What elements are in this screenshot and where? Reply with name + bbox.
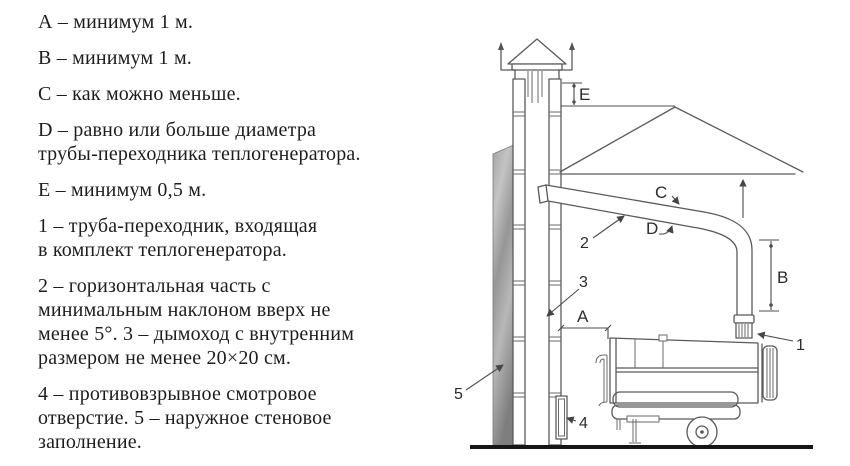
label-4: 4 [579,415,588,432]
label-e: Е [579,85,590,104]
label-d: D [646,219,658,238]
pipe-connector [734,315,754,338]
dimension-e: Е [561,83,675,106]
label-5: 5 [454,386,463,403]
roof [560,107,803,174]
heat-generator [596,335,777,447]
callout-2: 2 [580,216,624,252]
side-handle-pipe [596,355,607,406]
d-leader-line [659,226,672,234]
hitch-post [617,419,620,430]
cap-cone [508,39,566,64]
heater-body [596,335,777,406]
chimney-left-wall [513,79,525,445]
dimension-a: А [558,307,611,339]
callout-1: 1 [758,334,805,354]
inner-flue-pipe [528,71,542,103]
label-2: 2 [580,235,589,252]
c-leader-line [672,196,679,204]
label-a: А [577,307,589,326]
label-c: С [655,183,667,202]
callout-4: 4 [567,415,588,432]
body-seams [635,339,663,368]
label-1: 1 [796,337,805,354]
installation-diagram: Е С D 2 3 В [0,0,850,465]
cap-rim [512,64,562,70]
cap-supports [515,70,559,79]
jack-leg [629,419,641,443]
inspection-hatch [556,396,567,439]
label-b: В [777,268,788,287]
wheel [687,417,717,447]
lifting-eye [659,335,667,341]
chimney-right-wall [549,79,561,445]
trailer-step [627,416,659,422]
label-3: 3 [579,274,588,291]
chimney-cap [498,39,575,103]
dimension-b: В [759,240,788,311]
chimney [513,79,561,445]
